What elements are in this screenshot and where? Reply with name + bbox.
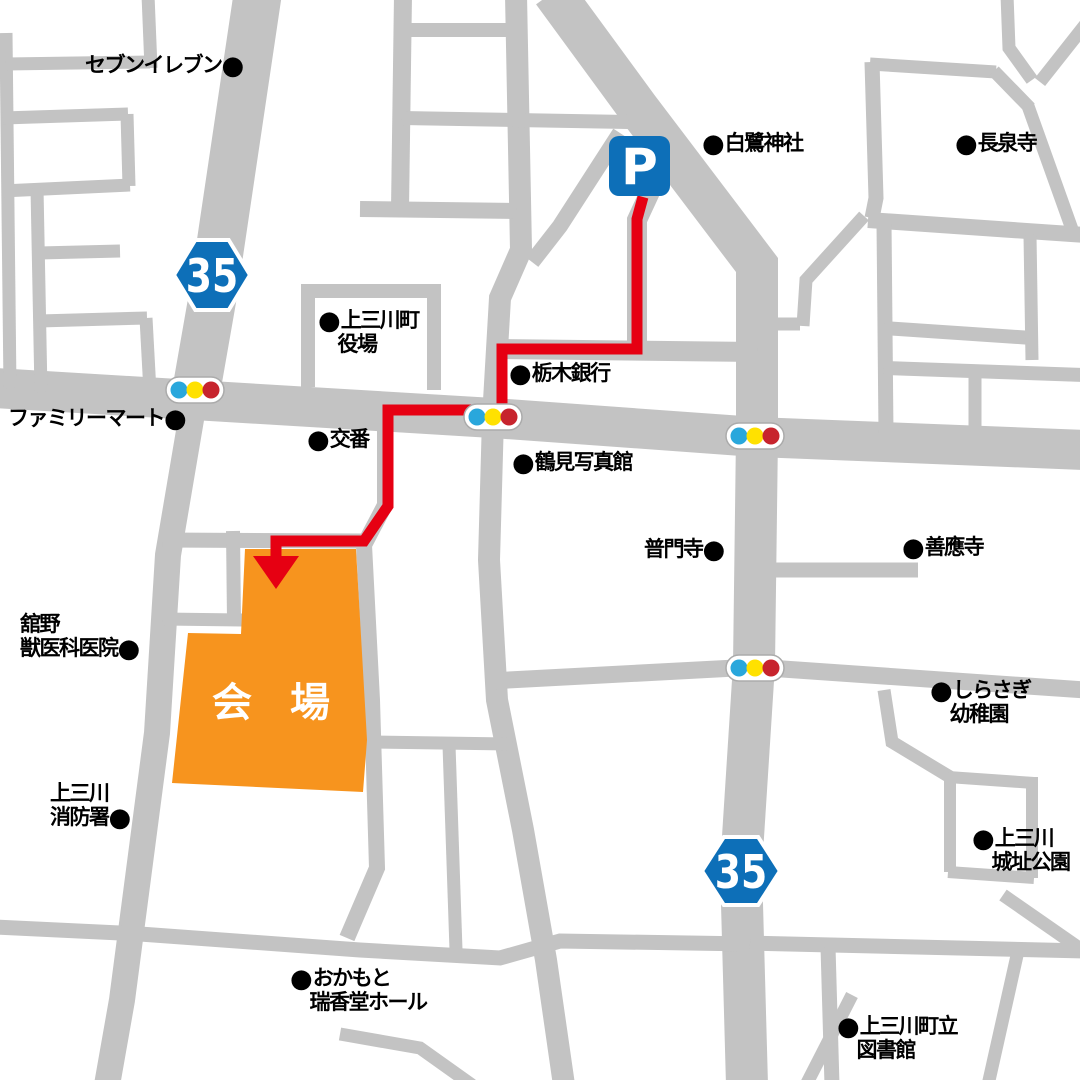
map-label-shirasagi-kindergarten: ●しらさぎ 幼稚園 [930,678,1031,726]
place-dot-icon: ● [955,129,978,159]
map-label-okamoto-zuikodo-hall: ●おかもと 瑞香堂ホール [290,966,427,1014]
place-dot-icon: ● [109,803,132,833]
place-dot-icon: ● [702,129,725,159]
place-dot-icon: ● [164,404,187,434]
map-label-castle-ruins-park: ●上三川 城址公園 [972,826,1070,874]
place-dot-icon: ● [512,448,535,478]
map-label-koban-police-box: ●交番 [307,427,369,451]
map-label-familymart: ファミリーマート● [8,406,187,430]
map-label-fumonji-temple: 普門寺● [644,537,725,561]
place-dot-icon: ● [222,51,245,81]
map-label-layer: セブンイレブン●●白鷺神社●長泉寺●上三川町 役場●栃木銀行ファミリーマート●●… [0,0,1080,1080]
map-label-tochigi-bank: ●栃木銀行 [509,361,610,385]
place-dot-icon: ● [902,533,925,563]
map-label-town-library: ●上三川町立 図書館 [837,1014,957,1062]
map-label-tateno-vet-clinic: 舘野獣医科医院● [20,612,140,660]
access-map: 会 場3535P セブンイレブン●●白鷺神社●長泉寺●上三川町 役場●栃木銀行フ… [0,0,1080,1080]
map-label-fire-station: 上三川消防署● [50,781,131,829]
map-label-zenoji-temple: ●善應寺 [902,535,983,559]
place-dot-icon: ● [307,425,330,455]
place-dot-icon: ● [118,634,141,664]
map-label-seven-eleven: セブンイレブン● [85,53,244,77]
map-label-tsurumi-photo-studio: ●鶴見写真館 [512,450,632,474]
place-dot-icon: ● [509,359,532,389]
map-label-shirasagi-shrine: ●白鷺神社 [702,131,803,155]
map-label-kaminokawa-town-hall: ●上三川町 役場 [318,308,419,356]
map-label-chosenji-temple: ●長泉寺 [955,131,1036,155]
place-dot-icon: ● [703,535,726,565]
